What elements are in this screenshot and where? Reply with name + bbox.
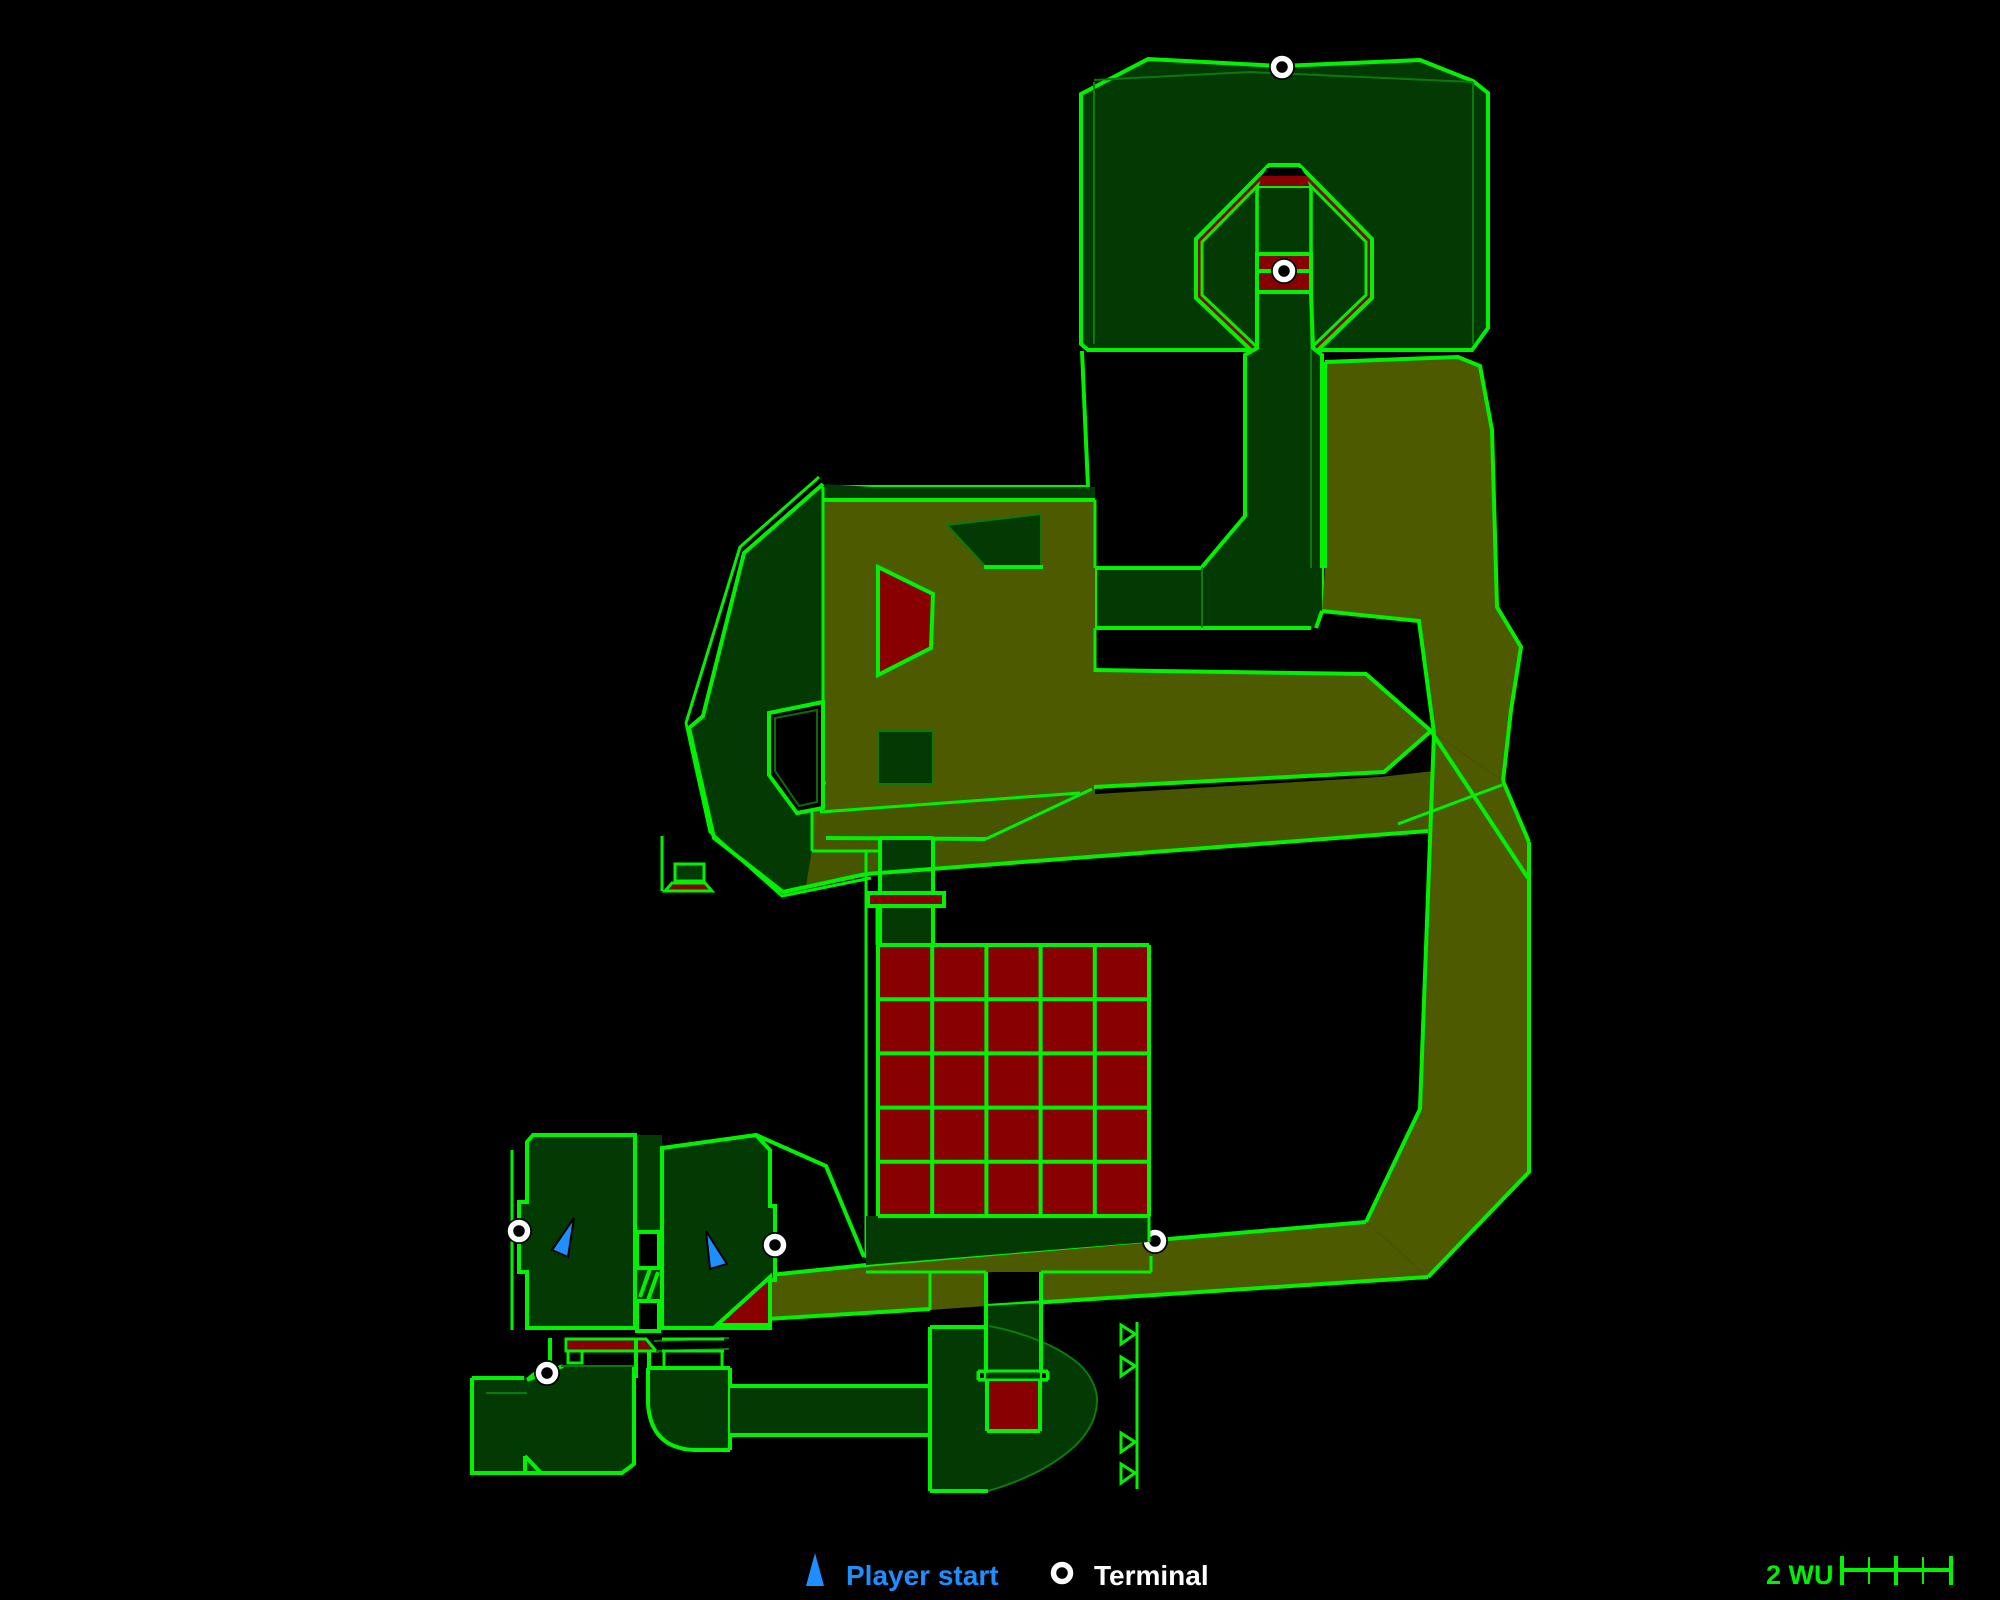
svg-text:Terminal: Terminal: [1094, 1560, 1209, 1591]
svg-text:Player start: Player start: [846, 1560, 999, 1591]
svg-text:2 WU: 2 WU: [1766, 1560, 1834, 1590]
